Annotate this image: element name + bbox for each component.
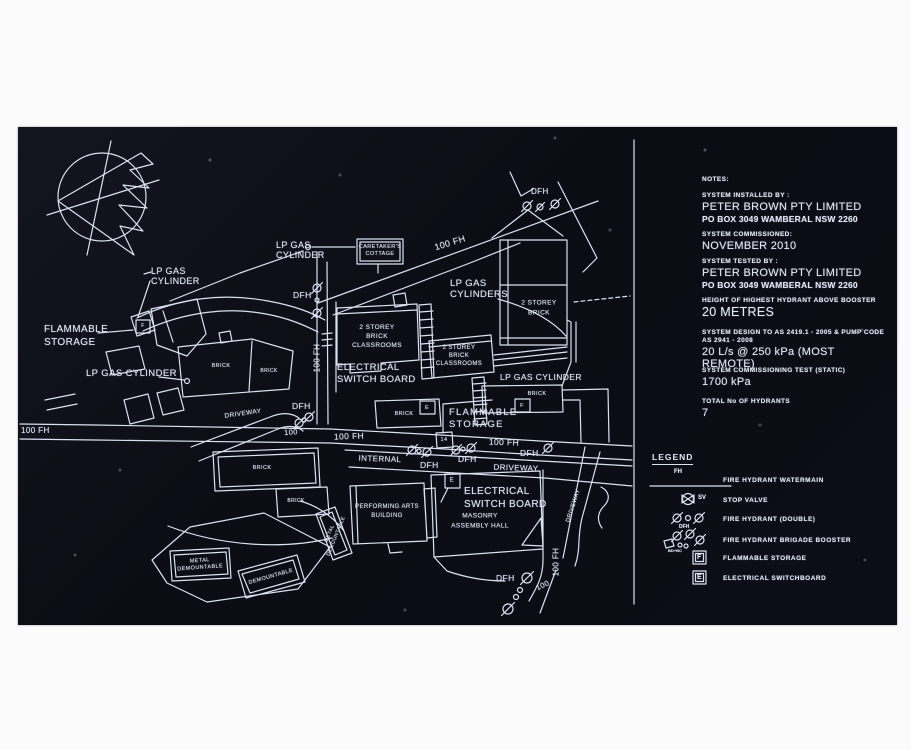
note-total-hydrants: TOTAL No OF HYDRANTS 7 <box>702 398 887 419</box>
f-mark-left: F <box>141 324 144 330</box>
metal-demountable-label: METAL DEMOUNTABLE <box>177 556 224 573</box>
fh-100-internal: 100 FH <box>489 438 520 449</box>
driveway-label-left: DRIVEWAY <box>224 408 262 421</box>
lp-gas-cylinder-label-top: LP GAS CYLINDER <box>276 240 325 261</box>
brick-label-small2: BRICK <box>287 499 304 505</box>
demountable-label: DEMOUNTABLE <box>248 568 294 587</box>
note-commissioning-test: SYSTEM COMMISSIONING TEST (STATIC) 1700 … <box>702 367 887 388</box>
notes-panel: NOTES: SYSTEM INSTALLED BY : PETER BROWN… <box>702 0 892 750</box>
fh-100-vertical-2: 100 FH <box>551 548 560 577</box>
brick-label-center: BRICK <box>395 411 414 417</box>
brick-label-a: BRICK <box>212 363 231 369</box>
fh-100-mid: 100 FH <box>334 432 365 443</box>
dfh-internal-mid: DFH <box>458 455 477 465</box>
notes-title: NOTES: <box>702 176 729 184</box>
caretakers-cottage-label: CARETAKER'S COTTAGE <box>359 244 401 258</box>
f-mark-right: F <box>520 403 524 409</box>
classrooms1-label: 2 STOREY BRICK CLASSROOMS <box>352 324 402 350</box>
dfh-internal-right: DFH <box>520 449 539 459</box>
fh-100-vertical-1: 100 FH <box>312 344 321 373</box>
note-system-installed: SYSTEM INSTALLED BY : PETER BROWN PTY LI… <box>702 192 887 224</box>
e-mark-center: E <box>425 405 429 411</box>
label-14: 14 <box>441 437 448 443</box>
masonry-label: MASONRY ASSEMBLY HALL <box>451 511 509 531</box>
fh-100-diagonal: 100 FH <box>433 233 467 252</box>
electrical-switch-board-label-1: ELECTRICAL SWITCH BOARD <box>337 362 416 387</box>
metal-demountable-rotated: METAL DEMOUNTABLE <box>319 513 347 557</box>
dfh-label-bottom: DFH <box>496 574 515 584</box>
note-highest-hydrant: HEIGHT OF HIGHEST HYDRANT ABOVE BOOSTER … <box>702 297 887 320</box>
note-system-tested: SYSTEM TESTED BY : PETER BROWN PTY LIMIT… <box>702 258 887 290</box>
dfh-label-top: DFH <box>531 187 549 196</box>
label-100-bottom: 100 <box>535 579 551 593</box>
brick-label-right: BRICK <box>528 391 547 397</box>
two-storey-brick-label: 2 STOREY BRICK <box>521 299 556 320</box>
driveway-label-right: DRIVEWAY <box>565 489 582 524</box>
flammable-storage-label-left: FLAMMABLE STORAGE <box>44 324 108 349</box>
brick-label-b: BRICK <box>260 369 277 375</box>
dfh-label-left2: DFH <box>292 402 311 412</box>
internal-label: INTERNAL <box>358 454 401 465</box>
fh-100-left-edge: 100 FH <box>21 426 50 435</box>
note-system-commissioned: SYSTEM COMMISSIONED: NOVEMBER 2010 <box>702 231 887 252</box>
flammable-storage-label-center: FLAMMABLE STORAGE <box>449 407 517 432</box>
dfh-internal-left: DFH <box>420 461 439 471</box>
driveway-label-internal: DRIVEWAY <box>493 463 538 474</box>
sign-photo: LP GAS CYLINDERCARETAKER'S COTTAGE100 FH… <box>0 0 911 750</box>
dfh-label-mid: DFH <box>293 291 312 301</box>
e-mark-hall: E <box>450 478 454 485</box>
classrooms2-label: 2 STOREY BRICK CLASSROOMS <box>436 344 482 368</box>
label-100-left: 100 <box>284 428 298 438</box>
lp-gas-cylinder-label-right: LP GAS CYLINDER <box>500 373 582 383</box>
performing-arts-label: PERFORMING ARTS BUILDING <box>355 503 419 521</box>
note-system-design: SYSTEM DESIGN TO AS 2419.1 - 2005 & PUMP… <box>702 329 887 370</box>
lp-gas-cylinder-label-left: LP GAS CYLINDER <box>151 266 200 287</box>
brick-label-big: BRICK <box>253 465 272 471</box>
lp-gas-cylinders-label: LP GAS CYLINDERS <box>450 279 508 301</box>
electrical-switch-board-label-2: ELECTRICAL SWITCH BOARD <box>464 485 547 511</box>
lp-gas-cylinder-label-bottomleft: LP GAS CYLINDER <box>86 369 177 380</box>
